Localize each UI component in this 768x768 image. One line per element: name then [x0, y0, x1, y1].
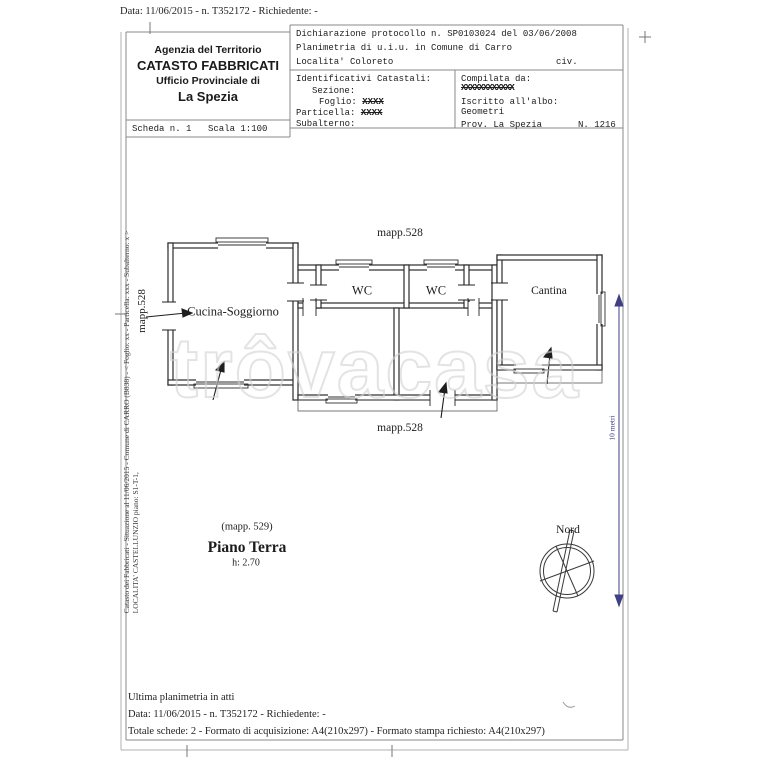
- left-margin-line1: Catasto dei Fabbricati - Situazione al 1…: [122, 231, 131, 614]
- foglio-value-redacted: XXXX: [362, 97, 384, 107]
- footer-line1: Ultima planimetria in atti: [128, 692, 234, 703]
- map-parcel-label-top: mapp.528: [377, 227, 423, 239]
- declaration-localita: Localita' Coloreto: [296, 57, 393, 67]
- albo-value: Geometri: [461, 107, 504, 117]
- foglio-row: Foglio: XXXX: [319, 97, 384, 107]
- map-parcel-label-bottom: mapp.528: [377, 422, 423, 434]
- cadastral-document-page: Data: 11/06/2015 - n. T352172 - Richiede…: [0, 0, 768, 768]
- sezione-label: Sezione:: [312, 86, 355, 96]
- declaration-protocol: Dichiarazione protocollo n. SP0103024 de…: [296, 29, 577, 39]
- room-label-cantina: Cantina: [531, 285, 567, 297]
- identifiers-title: Identificativi Catastali:: [296, 74, 431, 84]
- room-label-cucina-soggiorno: Cucina-Soggiorno: [187, 305, 279, 320]
- footer-line2: Data: 11/06/2015 - n. T352172 - Richiede…: [128, 709, 326, 720]
- declaration-planimetria: Planimetria di u.i.u. in Comune di Carro: [296, 43, 512, 53]
- door-ticks: [162, 283, 508, 406]
- agency-line4: La Spezia: [126, 89, 290, 104]
- room-label-wc-2: WC: [426, 284, 446, 299]
- registration-ticks: [115, 22, 651, 757]
- scale-bar: [615, 295, 623, 606]
- agency-line2: CATASTO FABBRICATI: [126, 58, 290, 73]
- agency-logo-block: Agenzia del Territorio CATASTO FABBRICAT…: [126, 44, 290, 104]
- floor-title: Piano Terra: [208, 539, 287, 557]
- foglio-label: Foglio:: [319, 97, 357, 107]
- plan-drawing: [0, 0, 768, 768]
- walls: [168, 243, 602, 400]
- pen-squiggle: [563, 702, 575, 707]
- left-margin-rotated-text: Catasto dei Fabbricati - Situazione al 1…: [122, 231, 140, 614]
- particella-row: Particella: XXXX: [296, 108, 382, 118]
- compass-rose: [540, 530, 594, 612]
- footer-line3: Totale schede: 2 - Formato di acquisizio…: [128, 726, 545, 737]
- declaration-civ: civ.: [556, 57, 578, 67]
- subalterno-label: Subalterno:: [296, 119, 355, 129]
- scale-bar-label: 10 metri: [608, 415, 617, 440]
- agency-line1: Agenzia del Territorio: [126, 44, 290, 56]
- floor-mapp-529: (mapp. 529): [221, 522, 272, 533]
- particella-value-redacted: XXXX: [361, 108, 383, 118]
- room-label-wc-1: WC: [352, 284, 372, 299]
- agency-line3: Ufficio Provinciale di: [126, 75, 290, 87]
- landings: [298, 370, 602, 411]
- albo-label: Iscritto all'albo:: [461, 97, 558, 107]
- door-arrows: [146, 309, 552, 418]
- compiler-number: N. 1216: [578, 120, 616, 130]
- document-date-line: Data: 11/06/2015 - n. T352172 - Richiede…: [120, 6, 318, 17]
- left-margin-line2: LOCALITA' CASTELLUNZIO piano: S1-T-1,: [131, 231, 140, 614]
- floor-height: h: 2.70: [232, 558, 260, 569]
- scheda-number: Scheda n. 1: [132, 124, 191, 134]
- compiler-prov: Prov. La Spezia: [461, 120, 542, 130]
- compiler-name-redacted: XXXXXXXXXXXX: [461, 83, 514, 93]
- outer-frame: [121, 28, 628, 750]
- particella-label: Particella:: [296, 108, 355, 118]
- compass-north-label: Nord: [556, 524, 580, 536]
- scala-value: Scala 1:100: [208, 124, 267, 134]
